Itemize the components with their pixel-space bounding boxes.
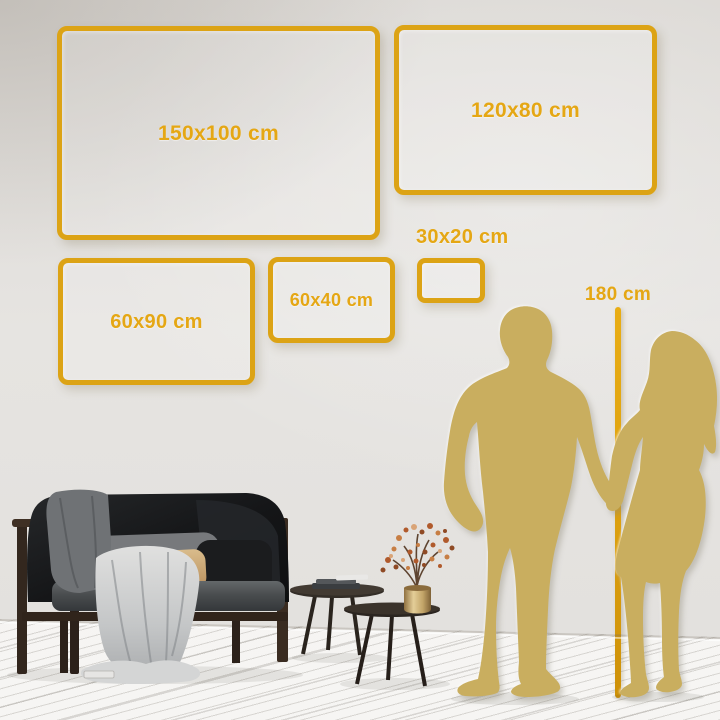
size-frame-60x40-label: 60x40 cm <box>290 291 373 309</box>
height-marker-label: 180 cm <box>558 284 678 306</box>
size-frame-60x90: 60x90 cm <box>58 258 255 385</box>
size-frame-60x40: 60x40 cm <box>268 257 395 343</box>
size-frame-120x80-label: 120x80 cm <box>471 100 580 121</box>
size-frame-150x100: 150x100 cm <box>57 26 380 240</box>
size-frame-150x100-label: 150x100 cm <box>158 123 279 144</box>
size-frame-30x20-label: 30x20 cm <box>416 227 508 247</box>
size-frame-60x90-label: 60x90 cm <box>110 312 202 332</box>
size-frame-120x80: 120x80 cm <box>394 25 657 195</box>
size-frame-30x20 <box>417 258 485 303</box>
size-guide-image: 150x100 cm 120x80 cm 60x90 cm 60x40 cm 3… <box>0 0 720 720</box>
height-marker-line <box>615 307 621 698</box>
